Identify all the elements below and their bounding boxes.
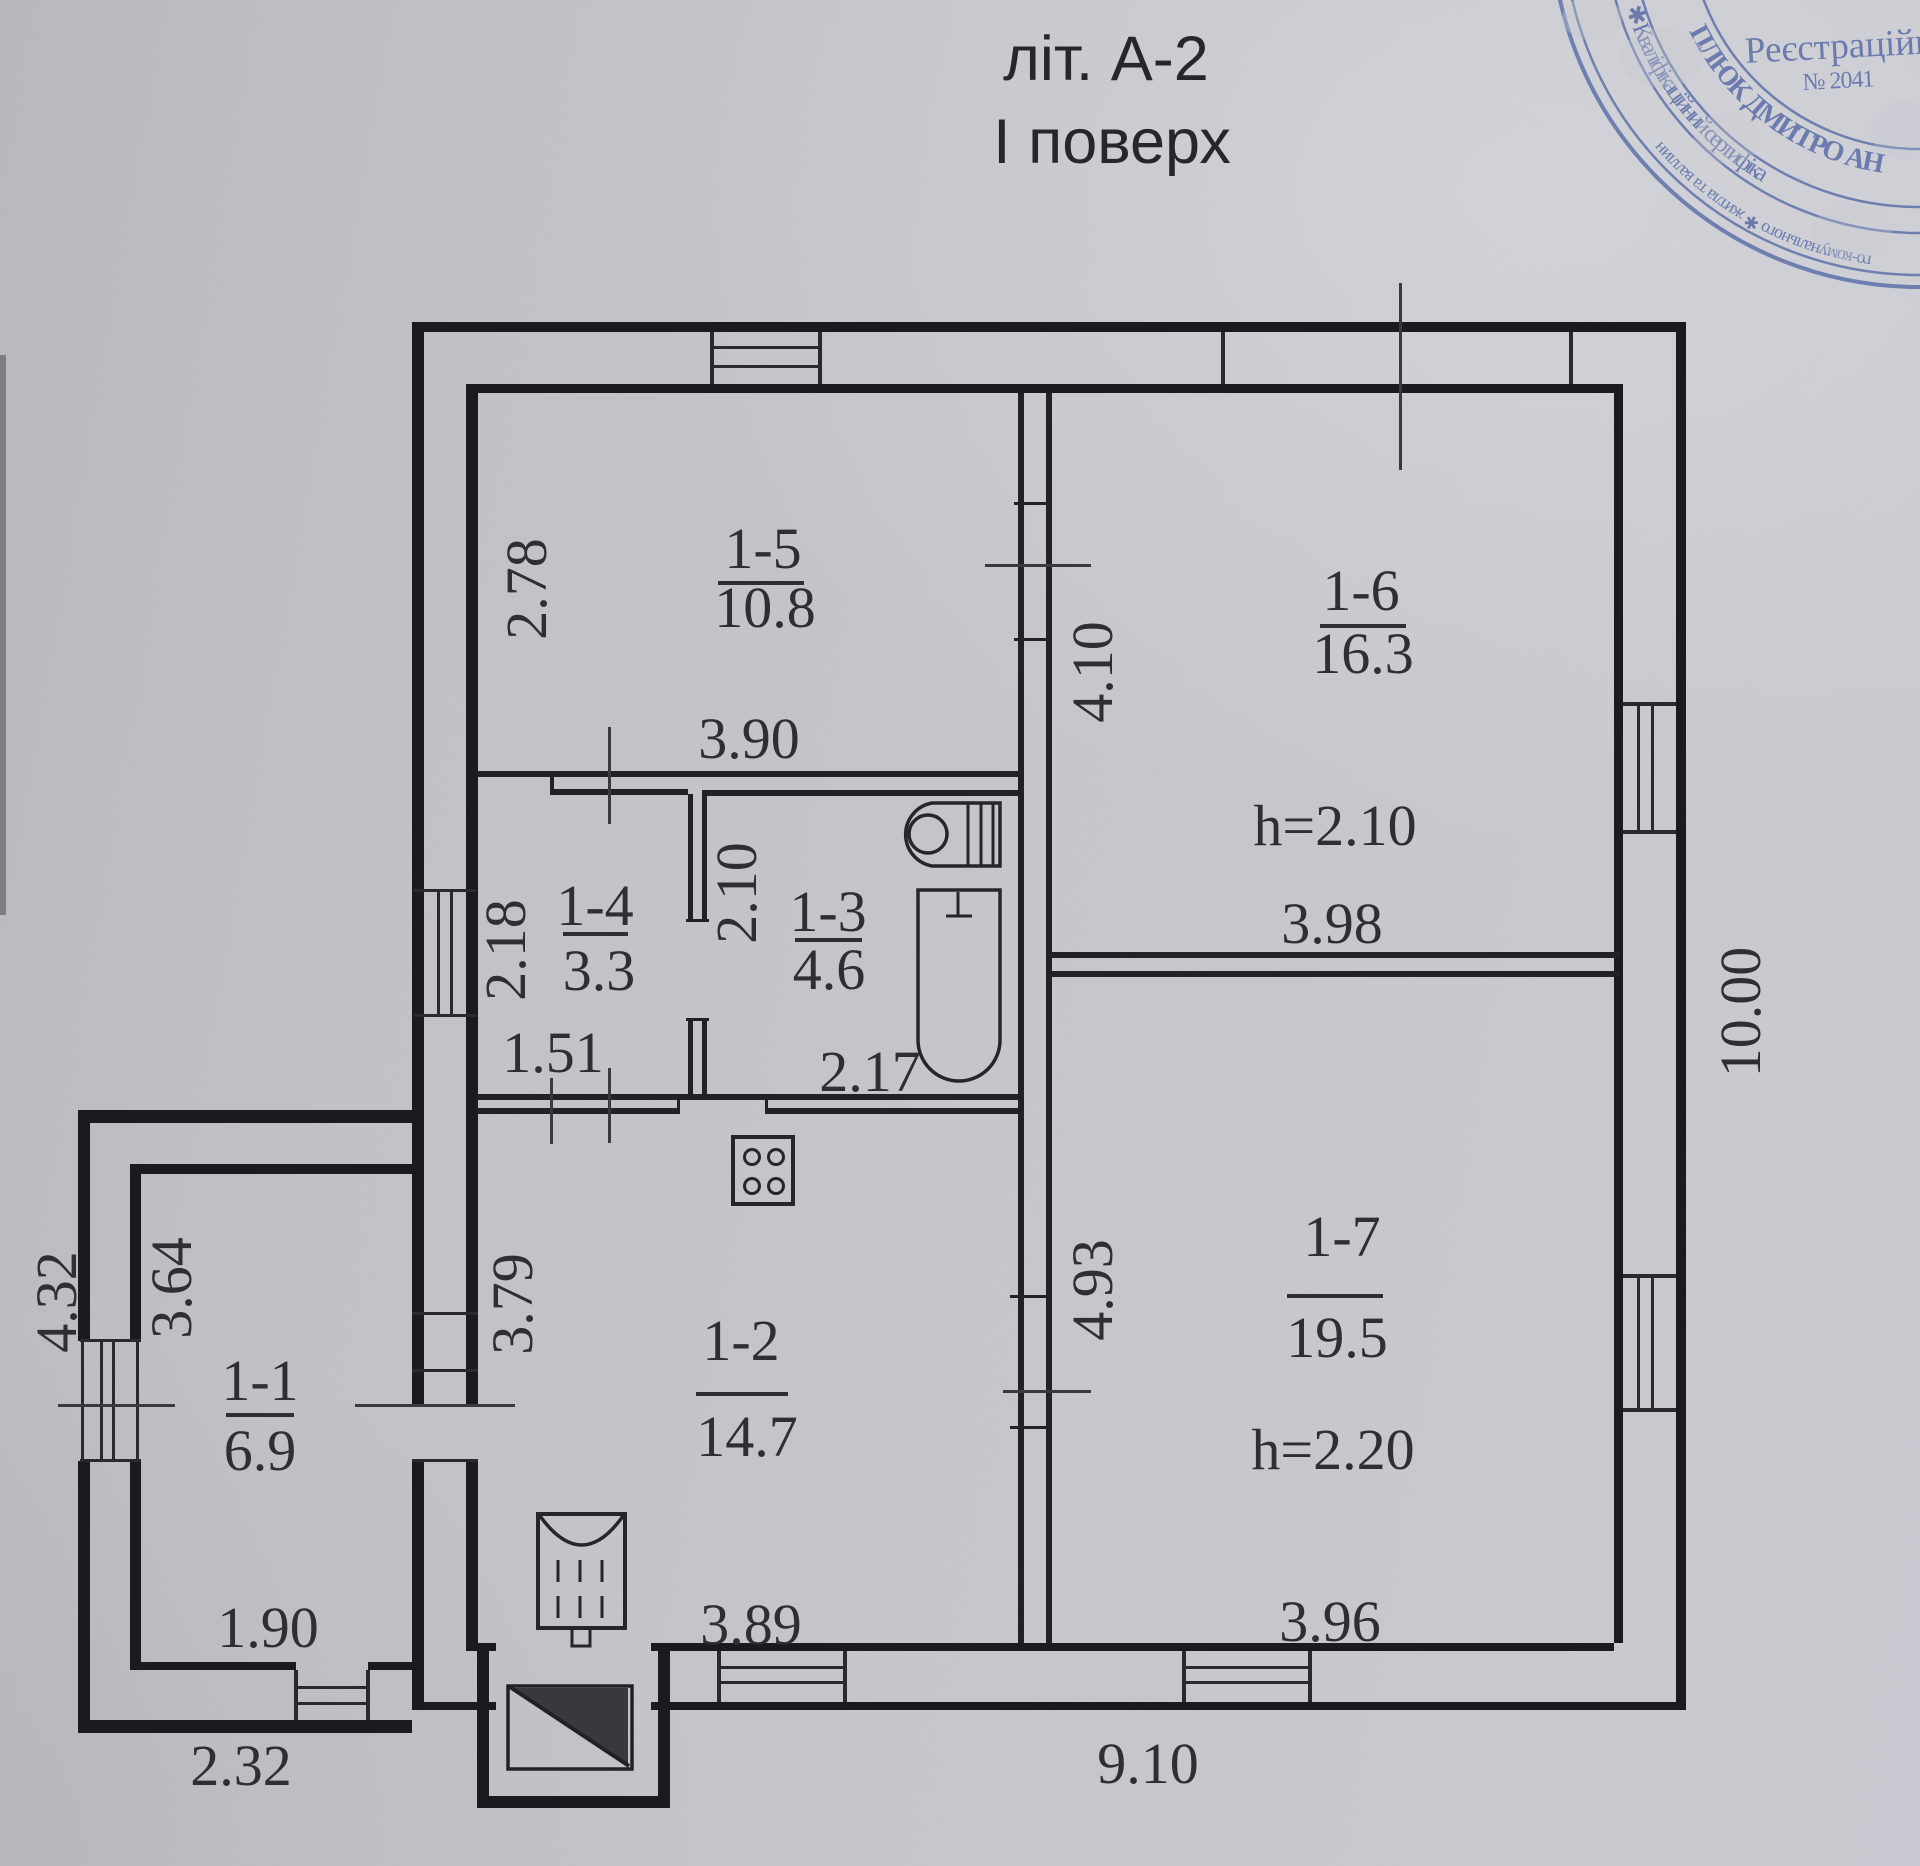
- svg-text:h=2.20: h=2.20: [1251, 1417, 1414, 1482]
- svg-text:3.89: 3.89: [700, 1592, 802, 1657]
- svg-text:2.18: 2.18: [473, 899, 538, 1001]
- svg-text:16.3: 16.3: [1312, 621, 1414, 686]
- svg-text:1-7: 1-7: [1303, 1204, 1380, 1269]
- svg-text:1-5: 1-5: [724, 516, 801, 581]
- svg-text:4.10: 4.10: [1060, 621, 1125, 723]
- svg-text:1.51: 1.51: [502, 1020, 604, 1085]
- svg-text:3.96: 3.96: [1279, 1589, 1381, 1654]
- svg-text:1.90: 1.90: [217, 1595, 319, 1660]
- svg-text:3.90: 3.90: [698, 706, 800, 771]
- svg-text:№ 2041: № 2041: [1802, 66, 1874, 96]
- svg-text:h=2.10: h=2.10: [1253, 793, 1416, 858]
- svg-text:2.32: 2.32: [190, 1733, 292, 1798]
- svg-text:3.79: 3.79: [480, 1253, 545, 1355]
- svg-text:1-3: 1-3: [789, 879, 866, 944]
- svg-text:1-2: 1-2: [702, 1308, 779, 1373]
- svg-text:3.3: 3.3: [563, 938, 636, 1003]
- svg-text:І поверх: І поверх: [993, 107, 1231, 177]
- svg-text:1-1: 1-1: [221, 1348, 298, 1413]
- svg-text:2.78: 2.78: [494, 538, 559, 640]
- svg-text:3.64: 3.64: [139, 1237, 204, 1339]
- svg-text:1-6: 1-6: [1322, 558, 1399, 623]
- svg-text:9.10: 9.10: [1097, 1731, 1199, 1796]
- svg-text:4.93: 4.93: [1060, 1239, 1125, 1341]
- svg-text:4.32: 4.32: [24, 1251, 89, 1353]
- svg-text:14.7: 14.7: [696, 1404, 798, 1469]
- svg-text:2.17: 2.17: [819, 1039, 921, 1104]
- svg-text:19.5: 19.5: [1286, 1305, 1388, 1370]
- svg-text:3.98: 3.98: [1281, 891, 1383, 956]
- svg-text:10.00: 10.00: [1708, 947, 1773, 1078]
- svg-text:2.10: 2.10: [704, 842, 769, 944]
- svg-text:1-4: 1-4: [556, 873, 633, 938]
- svg-text:4.6: 4.6: [793, 937, 866, 1002]
- svg-text:10.8: 10.8: [714, 575, 816, 640]
- svg-text:літ. А-2: літ. А-2: [1003, 24, 1209, 94]
- svg-text:6.9: 6.9: [224, 1418, 297, 1483]
